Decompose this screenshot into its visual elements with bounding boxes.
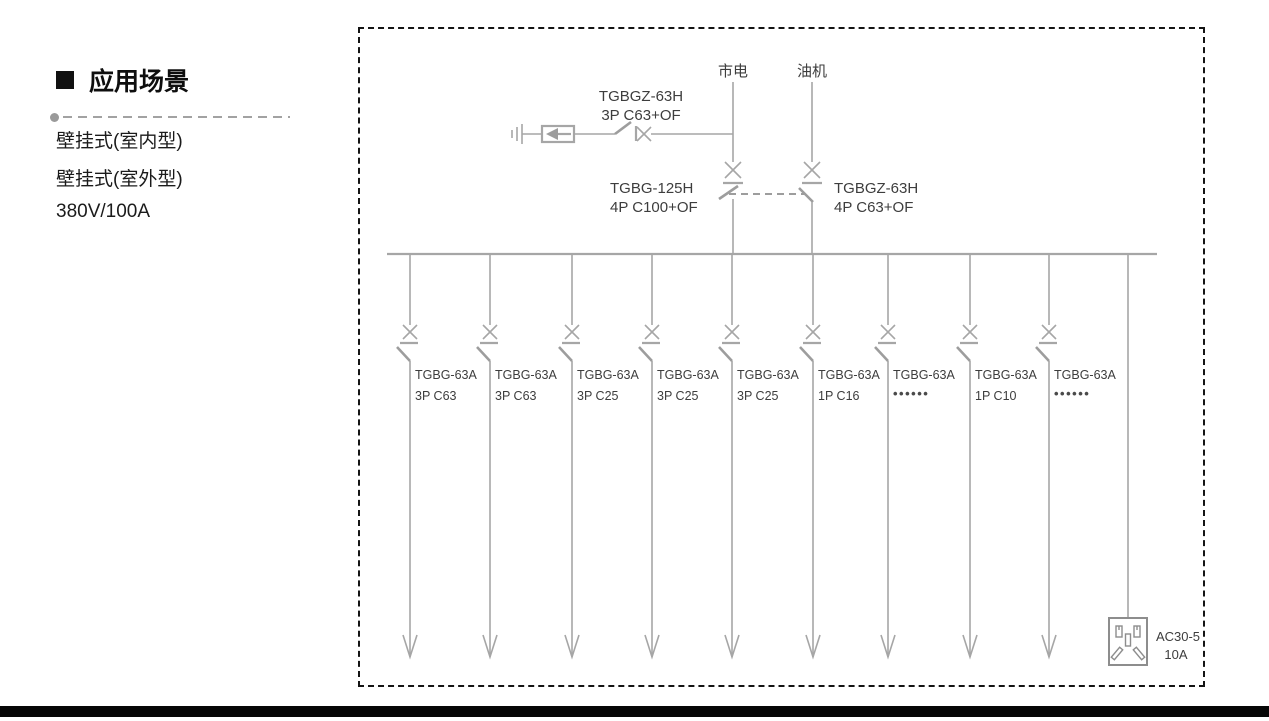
- single-line-diagram: 市电 油机: [360, 29, 1203, 685]
- branch-model: TGBG-63A: [657, 368, 719, 382]
- generator-incomer: [799, 82, 822, 254]
- branch: TGBG-63A 1P C16: [800, 254, 880, 657]
- branch: TGBG-63A 3P C25: [639, 254, 719, 657]
- branch: TGBG-63A ••••••: [1036, 254, 1116, 657]
- spd-breaker-spec: 3P C63+OF: [601, 107, 680, 124]
- branch: TGBG-63A 3P C25: [719, 254, 799, 657]
- feature-item: 壁挂式(室内型): [56, 126, 183, 153]
- branch-model: TGBG-63A: [893, 368, 955, 382]
- branch-spec: 3P C25: [577, 389, 619, 403]
- branch: TGBG-63A 1P C10: [957, 254, 1037, 657]
- branch-model: TGBG-63A: [577, 368, 639, 382]
- branch-spec: 1P C10: [975, 389, 1017, 403]
- spd-breaker-model: TGBGZ-63H: [599, 88, 683, 105]
- branch-model: TGBG-63A: [975, 368, 1037, 382]
- feature-item: 380V/100A: [56, 201, 150, 223]
- page: 应用场景 壁挂式(室内型) 壁挂式(室外型) 380V/100A 市电 油机: [0, 0, 1269, 721]
- branch: TGBG-63A 3P C25: [559, 254, 639, 657]
- mains-source-label: 市电: [718, 63, 748, 80]
- generator-breaker-model: TGBGZ-63H: [834, 180, 918, 197]
- generator-source-label: 油机: [797, 63, 827, 80]
- dotted-divider: [50, 112, 290, 122]
- section-title: 应用场景: [89, 62, 189, 98]
- spd-branch: [512, 122, 733, 144]
- branch-model: TGBG-63A: [1054, 368, 1116, 382]
- branch-model: TGBG-63A: [415, 368, 477, 382]
- branch-model: TGBG-63A: [495, 368, 557, 382]
- branch-spec: 1P C16: [818, 389, 860, 403]
- socket-rating: 10A: [1164, 647, 1187, 662]
- branch-spec: 3P C63: [415, 389, 457, 403]
- branch: TGBG-63A 3P C63: [397, 254, 477, 657]
- wiring-diagram-box: 市电 油机: [358, 27, 1205, 687]
- branch-spec-dots: ••••••: [1054, 386, 1090, 401]
- bottom-bar: [0, 706, 1269, 717]
- branch-spec: 3P C63: [495, 389, 537, 403]
- branch: TGBG-63A 3P C63: [477, 254, 557, 657]
- socket-branch: AC30-5 10A: [1109, 254, 1200, 665]
- section-heading: 应用场景: [56, 62, 189, 98]
- square-bullet-icon: [56, 71, 74, 89]
- branch-spec: 3P C25: [737, 389, 779, 403]
- mains-breaker-model: TGBG-125H: [610, 180, 693, 197]
- socket-icon: [1109, 618, 1147, 665]
- branch-spec: 3P C25: [657, 389, 699, 403]
- branch: TGBG-63A ••••••: [875, 254, 955, 657]
- branch-spec-dots: ••••••: [893, 386, 929, 401]
- generator-breaker-spec: 4P C63+OF: [834, 199, 913, 216]
- mains-breaker-spec: 4P C100+OF: [610, 199, 698, 216]
- feature-item: 壁挂式(室外型): [56, 164, 183, 191]
- socket-model: AC30-5: [1156, 629, 1200, 644]
- divider-dashes: [63, 116, 290, 118]
- application-scenario-panel: 应用场景 壁挂式(室内型) 壁挂式(室外型) 380V/100A: [0, 0, 350, 700]
- branch-model: TGBG-63A: [737, 368, 799, 382]
- mains-incomer: [719, 82, 743, 254]
- divider-dot-icon: [50, 113, 59, 122]
- spd-icon: [542, 126, 574, 142]
- branch-model: TGBG-63A: [818, 368, 880, 382]
